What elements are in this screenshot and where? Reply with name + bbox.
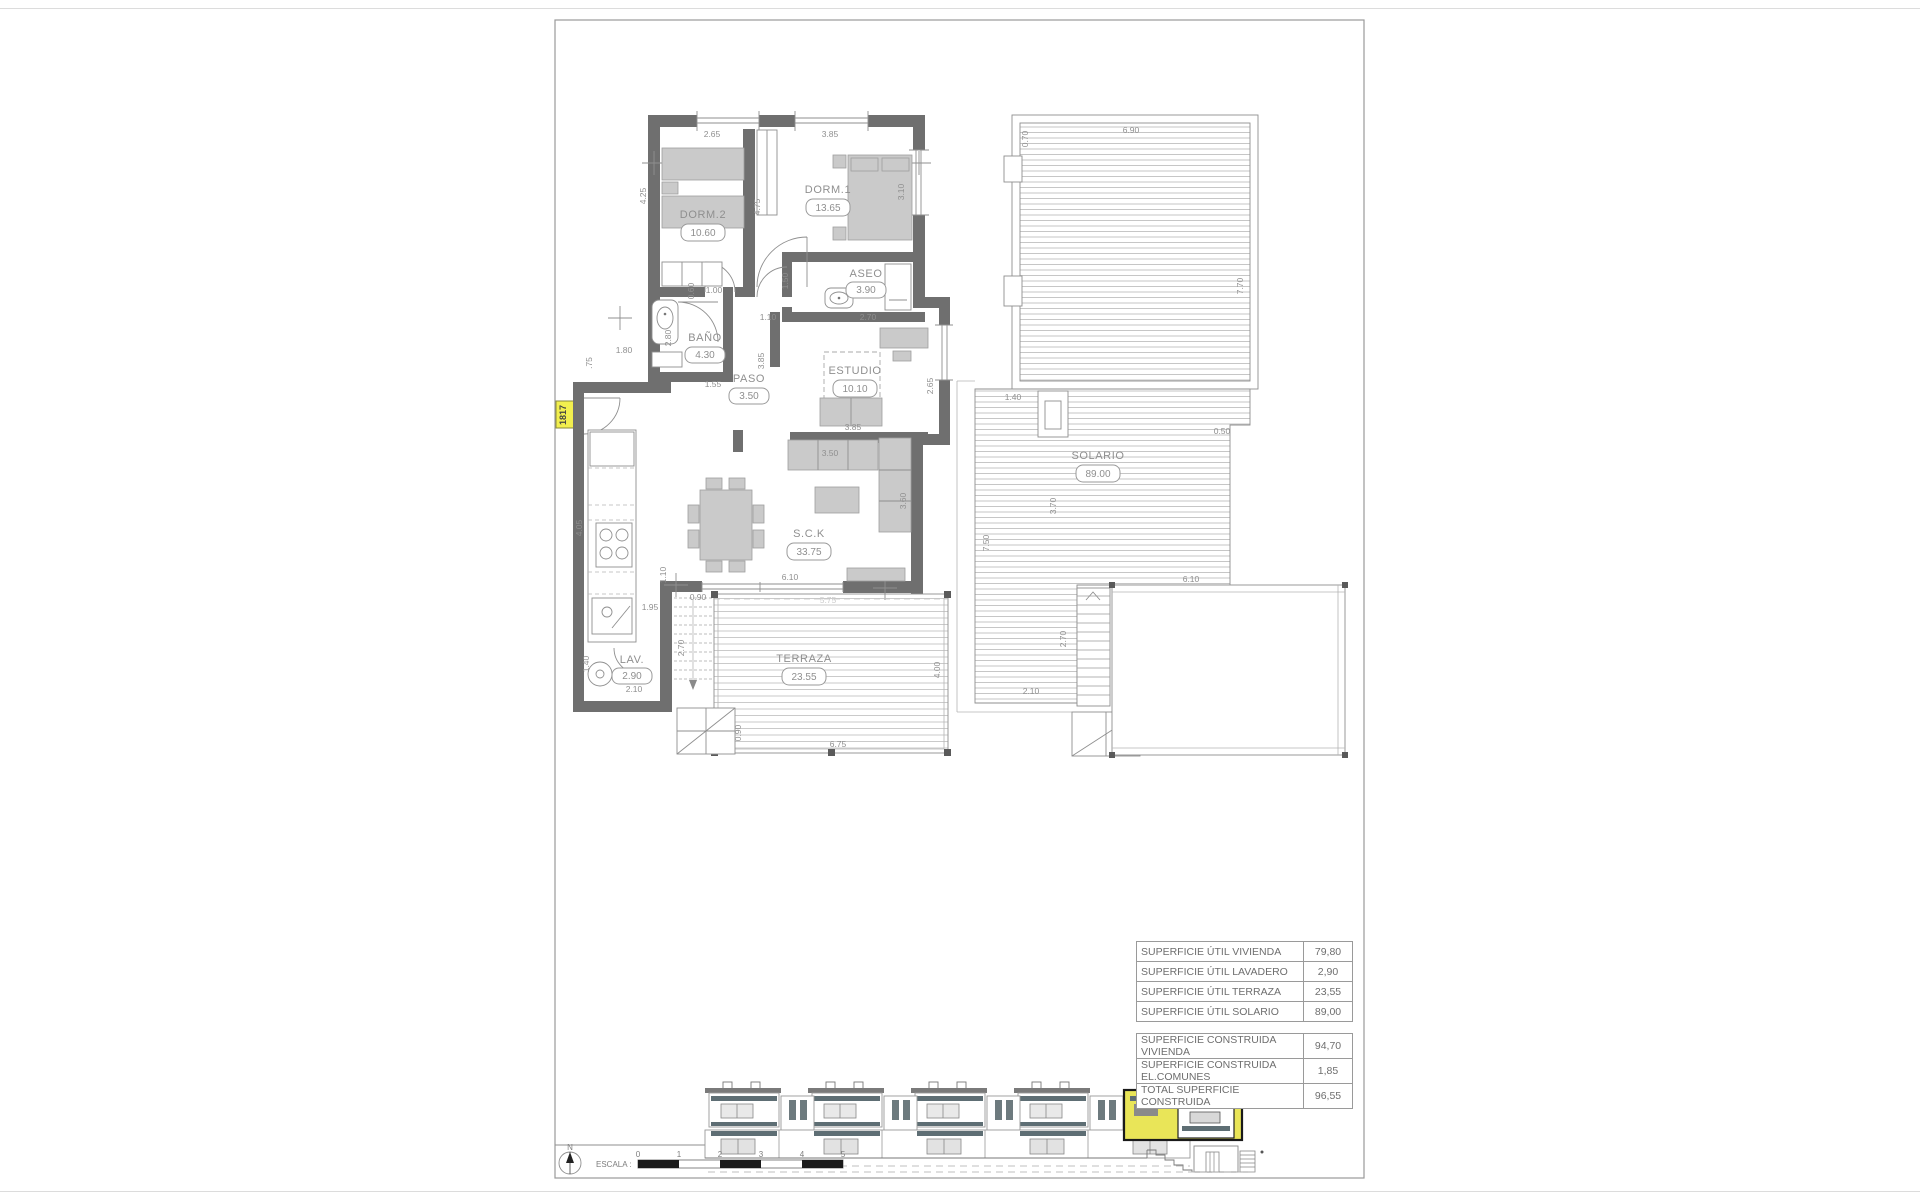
page-bottom-divider: [0, 1191, 1920, 1192]
dimension-label: 2.70: [676, 639, 686, 656]
terraza-exterior-stair: [677, 708, 735, 754]
nightstand: [662, 182, 678, 194]
dimension-label: 0.60: [686, 282, 696, 299]
scale-tick: 1: [677, 1150, 682, 1159]
room-area: 2.90: [622, 671, 642, 682]
dimension-label: 6.90: [1123, 125, 1140, 135]
table-cell-value: 2,90: [1304, 962, 1353, 982]
dimension-label: 0.90: [733, 724, 743, 741]
room-area: 3.90: [856, 285, 876, 296]
room-area: 89.00: [1085, 469, 1110, 480]
pillow: [882, 158, 909, 171]
table-row: SUPERFICIE ÚTIL TERRAZA 23,55: [1137, 982, 1353, 1002]
table-cell-value: 96,55: [1304, 1084, 1353, 1109]
area-table-util: SUPERFICIE ÚTIL VIVIENDA 79,80 SUPERFICI…: [1136, 941, 1353, 1022]
unit-tag: 1817: [556, 401, 575, 428]
lower-terrace: [1109, 582, 1348, 758]
dimension-label: 3.85: [845, 422, 862, 432]
bed: [662, 148, 744, 180]
room-area: 3.50: [739, 391, 759, 402]
washing-machine-icon: [588, 662, 612, 686]
table-cell-value: 1,85: [1304, 1059, 1353, 1084]
dimension-label: 6.10: [1183, 574, 1200, 584]
table-cell-label: SUPERFICIE ÚTIL VIVIENDA: [1137, 942, 1304, 962]
table-cell-label: SUPERFICIE CONSTRUIDA VIVIENDA: [1137, 1034, 1304, 1059]
room-label: TERRAZA: [776, 653, 832, 665]
dimension-label: 1.50: [780, 272, 790, 289]
chimney-box: [1038, 391, 1068, 437]
dimension-label: 4.25: [638, 187, 648, 204]
dimension-label: 3.70: [1048, 497, 1058, 514]
dimension-label: 2.70: [1058, 630, 1068, 647]
dimension-label-faint: 5.75: [820, 595, 837, 605]
table-cell-label: TOTAL SUPERFICIE CONSTRUIDA: [1137, 1084, 1304, 1109]
dimension-label: 0.70: [1020, 130, 1030, 147]
table-row: SUPERFICIE ÚTIL LAVADERO 2,90: [1137, 962, 1353, 982]
room-label: PASO: [733, 373, 765, 385]
nightstand: [833, 155, 846, 168]
chair: [893, 351, 911, 361]
scale-tick: 3: [759, 1150, 764, 1159]
dimension-label: 3.85: [822, 129, 839, 139]
room-area: 23.55: [791, 672, 816, 683]
dimension-label: 2.10: [626, 684, 643, 694]
table-row: SUPERFICIE ÚTIL VIVIENDA 79,80: [1137, 942, 1353, 962]
room-label: S.C.K: [793, 528, 825, 540]
coffee-table: [815, 487, 859, 513]
north-arrow-icon: N: [559, 1143, 581, 1174]
scale-tick: 2: [718, 1150, 723, 1159]
dimension-label: 2.80: [663, 329, 673, 346]
dimension-label: 1.40: [1005, 392, 1022, 402]
solario-stairs: [1077, 588, 1110, 706]
room-label: DORM.1: [805, 184, 851, 196]
page-top-divider: [0, 8, 1920, 9]
room-label: ESTUDIO: [828, 365, 881, 377]
dimension-label: 6.10: [782, 572, 799, 582]
table-cell-value: 89,00: [1304, 1002, 1353, 1022]
table-row: TOTAL SUPERFICIE CONSTRUIDA 96,55: [1137, 1084, 1353, 1109]
dimension-label: 2.70: [860, 312, 877, 322]
scale-label: ESCALA :: [596, 1160, 632, 1169]
closet: [662, 262, 722, 286]
area-table-construida: SUPERFICIE CONSTRUIDA VIVIENDA 94,70 SUP…: [1136, 1033, 1353, 1109]
room-label: SOLARIO: [1071, 450, 1124, 462]
dimension-label: 2.10: [1023, 686, 1040, 696]
unit-tag-label: 1817: [558, 405, 568, 425]
table-cell-label: SUPERFICIE ÚTIL TERRAZA: [1137, 982, 1304, 1002]
dimension-label: 2.65: [704, 129, 721, 139]
room-area: 4.30: [695, 350, 715, 361]
fridge: [590, 432, 634, 466]
tv-bench: [847, 568, 905, 581]
cabinet: [652, 352, 682, 367]
dimension-label: 0.50: [1214, 426, 1231, 436]
solario-upper-deck: [1004, 115, 1258, 389]
room-estudio-furniture: [820, 328, 928, 426]
scale-tick: 0: [636, 1150, 641, 1159]
scale-tick: 4: [800, 1150, 805, 1159]
dimension-label: 1.10: [760, 312, 777, 322]
desk: [880, 328, 928, 348]
dimension-label: 7.70: [1235, 277, 1245, 294]
sink-icon: [592, 598, 632, 634]
nightstand: [833, 227, 846, 240]
table-cell-label: SUPERFICIE CONSTRUIDA EL.COMUNES: [1137, 1059, 1304, 1084]
shower: [885, 264, 911, 310]
table-cell-value: 23,55: [1304, 982, 1353, 1002]
area-tables: SUPERFICIE ÚTIL VIVIENDA 79,80 SUPERFICI…: [1136, 941, 1353, 1120]
dimension-label: 3.60: [898, 492, 908, 509]
sofa: [879, 438, 911, 532]
room-label: LAV.: [620, 654, 644, 666]
floor-plan-drawing: 1817: [0, 0, 1920, 1200]
dimension-label: 7.50: [981, 534, 991, 551]
table-cell-value: 79,80: [1304, 942, 1353, 962]
dimension-label: 1.40: [581, 655, 591, 672]
dining-table: [700, 490, 752, 560]
room-area: 13.65: [815, 203, 840, 214]
room-area: 10.60: [690, 228, 715, 239]
dimension-label: 4.75: [752, 198, 762, 215]
dimension-label: 3.50: [822, 448, 839, 458]
room-label: ASEO: [850, 268, 883, 280]
table-cell-label: SUPERFICIE ÚTIL LAVADERO: [1137, 962, 1304, 982]
room-area: 10.10: [842, 384, 867, 395]
room-area: 33.75: [796, 547, 821, 558]
pillow: [851, 158, 878, 171]
room-label: BAÑO: [688, 331, 722, 344]
table-row: SUPERFICIE ÚTIL SOLARIO 89,00: [1137, 1002, 1353, 1022]
table-cell-value: 94,70: [1304, 1034, 1353, 1059]
dimension-label: 4.05: [574, 519, 584, 536]
north-label: N: [567, 1143, 573, 1152]
dimension-label: 6.75: [830, 739, 847, 749]
kitchen: [588, 430, 636, 642]
table-row: SUPERFICIE CONSTRUIDA VIVIENDA 94,70: [1137, 1034, 1353, 1059]
dimension-label: .75: [584, 357, 594, 369]
table-row: SUPERFICIE CONSTRUIDA EL.COMUNES 1,85: [1137, 1059, 1353, 1084]
dimension-label: 1.95: [642, 602, 659, 612]
dimension-label: 1.80: [616, 345, 633, 355]
room-lav: [588, 662, 612, 686]
cooktop-icon: [596, 523, 632, 567]
dimension-label: 1.00: [706, 285, 723, 295]
dimension-label: 0.90: [690, 592, 707, 602]
dimension-label: 1.55: [705, 379, 722, 389]
dimension-label: 1.10: [658, 566, 668, 583]
drawing-sheet-page: 1817: [0, 0, 1920, 1200]
dimension-label: 2.65: [925, 377, 935, 394]
room-label: DORM.2: [680, 209, 726, 221]
scale-tick: 5: [841, 1150, 846, 1159]
dimension-label: 3.85: [756, 352, 766, 369]
dimension-label: 4.00: [932, 661, 942, 678]
dimension-label: 3.10: [896, 183, 906, 200]
table-cell-label: SUPERFICIE ÚTIL SOLARIO: [1137, 1002, 1304, 1022]
